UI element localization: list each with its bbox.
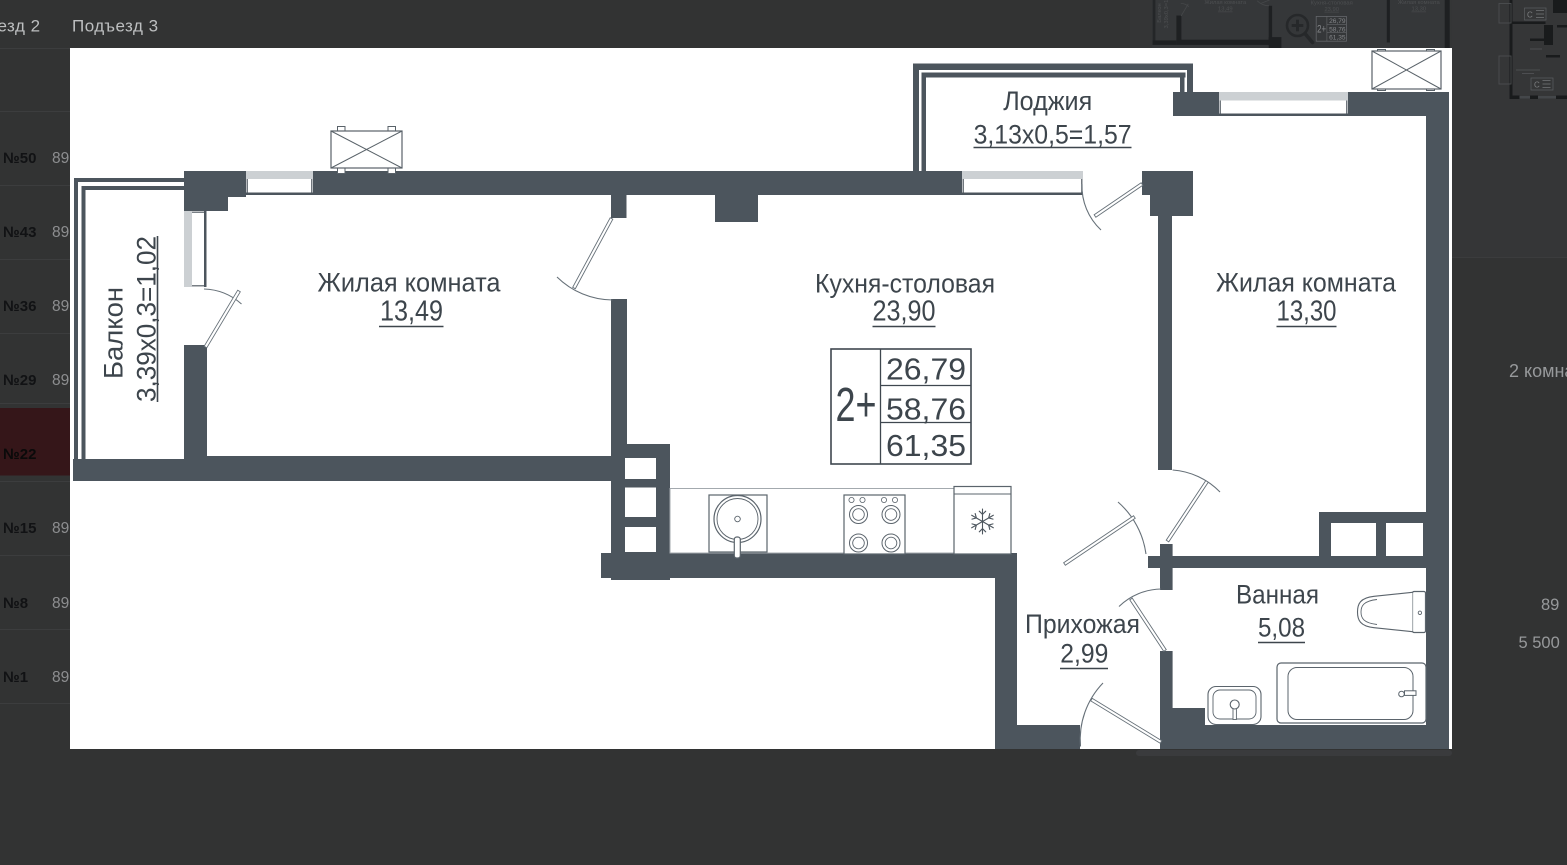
svg-text:2 комнаты: 2 комнаты (1509, 361, 1567, 381)
svg-text:13,49: 13,49 (380, 296, 443, 328)
svg-text:№22: №22 (3, 446, 36, 463)
svg-text:23,90: 23,90 (873, 296, 936, 328)
svg-text:Лоджия: Лоджия (1003, 86, 1092, 116)
svg-text:С: С (1527, 11, 1533, 20)
svg-text:№36: №36 (3, 298, 36, 315)
svg-text:3,13х0,5=1,57: 3,13х0,5=1,57 (974, 120, 1132, 150)
svg-text:№29: №29 (3, 372, 36, 389)
svg-text:Подъезд 2: Подъезд 2 (0, 17, 41, 36)
svg-text:2+: 2+ (1317, 23, 1326, 35)
svg-text:Прихожая: Прихожая (1025, 609, 1140, 639)
svg-text:Жилая комната: Жилая комната (318, 268, 501, 298)
svg-text:5 500: 5 500 (1519, 634, 1560, 652)
svg-text:Балкон: Балкон (1157, 3, 1163, 22)
svg-text:№50: №50 (3, 150, 36, 167)
svg-text:58,76: 58,76 (1329, 27, 1346, 34)
svg-text:13,49: 13,49 (1218, 7, 1233, 13)
svg-text:Балкон: Балкон (99, 287, 129, 379)
svg-text:5,08: 5,08 (1258, 613, 1305, 643)
svg-text:Кухня-столовая: Кухня-столовая (815, 269, 995, 299)
svg-text:Подъезд 3: Подъезд 3 (72, 17, 159, 36)
svg-text:2,99: 2,99 (1060, 639, 1108, 669)
svg-text:58,76: 58,76 (886, 392, 966, 427)
svg-text:Жилая комната: Жилая комната (1216, 268, 1396, 298)
svg-text:Кухня-столовая: Кухня-столовая (1311, 0, 1353, 6)
svg-text:26,79: 26,79 (1329, 18, 1346, 25)
svg-text:2+: 2+ (836, 379, 877, 432)
svg-text:13,30: 13,30 (1277, 296, 1337, 328)
svg-text:Жилая комната: Жилая комната (1204, 0, 1247, 6)
svg-text:3,39х0,3=1,02: 3,39х0,3=1,02 (1164, 0, 1170, 28)
svg-text:Жилая комната: Жилая комната (1398, 0, 1441, 6)
svg-text:№15: №15 (3, 520, 36, 537)
svg-text:23,90: 23,90 (1324, 7, 1339, 13)
svg-text:№8: №8 (3, 595, 28, 612)
svg-text:С: С (1534, 81, 1540, 90)
svg-text:61,35: 61,35 (886, 428, 966, 463)
svg-text:13,30: 13,30 (1412, 7, 1427, 13)
svg-text:89: 89 (1541, 596, 1559, 614)
svg-text:Ванная: Ванная (1236, 580, 1319, 610)
svg-text:№1: №1 (3, 669, 28, 686)
svg-text:№43: №43 (3, 224, 36, 241)
svg-text:61,35: 61,35 (1329, 35, 1346, 42)
svg-text:26,79: 26,79 (886, 352, 966, 387)
